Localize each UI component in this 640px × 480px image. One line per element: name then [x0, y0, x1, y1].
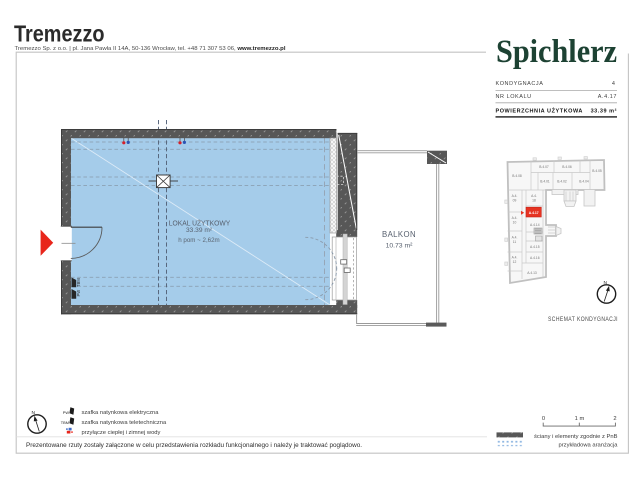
svg-text:A.4.: A.4.	[512, 256, 518, 260]
svg-text:1 m: 1 m	[575, 416, 585, 422]
svg-text:A.4.14: A.4.14	[530, 223, 540, 227]
svg-text:B.4.05: B.4.05	[592, 169, 602, 173]
svg-text:12: 12	[513, 260, 517, 264]
svg-text:A.4.15: A.4.15	[530, 245, 540, 249]
svg-text:ściany i elementy zgodnie z Pn: ściany i elementy zgodnie z PnB	[534, 434, 618, 440]
svg-text:33.39 m²: 33.39 m²	[186, 227, 213, 234]
svg-text:11: 11	[513, 240, 517, 244]
svg-text:BALKON: BALKON	[382, 230, 416, 239]
svg-text:B.4.01: B.4.01	[540, 180, 550, 184]
svg-text:Tremezzo: Tremezzo	[14, 21, 105, 47]
svg-text:A.4.17: A.4.17	[529, 211, 539, 215]
svg-text:szafka natynkowa elektryczna: szafka natynkowa elektryczna	[82, 410, 160, 416]
svg-text:33.39 m²: 33.39 m²	[591, 108, 617, 115]
svg-text:szafka natynkowa teletechniczn: szafka natynkowa teletechniczna	[82, 420, 168, 426]
svg-text:KONDYGNACJA: KONDYGNACJA	[496, 81, 544, 87]
svg-text:TBM: TBM	[76, 278, 81, 287]
svg-text:09: 09	[513, 198, 517, 202]
svg-text:0: 0	[542, 416, 545, 422]
svg-text:TBM: TBM	[61, 420, 69, 425]
svg-text:PW: PW	[63, 410, 70, 415]
svg-text:przykładowa aranżacja: przykładowa aranżacja	[559, 442, 619, 448]
svg-text:18: 18	[532, 198, 536, 202]
svg-text:N: N	[32, 410, 36, 416]
svg-text:4: 4	[612, 81, 616, 87]
svg-text:B.4.02: B.4.02	[557, 180, 567, 184]
svg-text:Prezentowane rzuty zostały zał: Prezentowane rzuty zostały załączone w c…	[26, 442, 362, 449]
svg-text:B.4.04: B.4.04	[579, 180, 589, 184]
svg-text:PW: PW	[76, 290, 81, 297]
svg-text:SCHEMAT KONDYGNACJI: SCHEMAT KONDYGNACJI	[548, 317, 618, 323]
svg-text:A.4.: A.4.	[512, 236, 518, 240]
svg-text:LOKAL UŻYTKOWY: LOKAL UŻYTKOWY	[169, 218, 231, 227]
svg-text:10: 10	[513, 220, 517, 224]
svg-text:B.4.08: B.4.08	[512, 174, 522, 178]
svg-text:2: 2	[613, 416, 616, 422]
svg-text:h pom ~ 2,62m: h pom ~ 2,62m	[178, 237, 219, 244]
svg-text:A.4.16: A.4.16	[530, 256, 540, 260]
svg-text:Spichlerz: Spichlerz	[496, 34, 617, 70]
svg-text:N: N	[604, 280, 608, 286]
svg-text:A.4.: A.4.	[531, 194, 537, 198]
svg-text:NR LOKALU: NR LOKALU	[496, 94, 532, 100]
svg-text:B.4.06: B.4.06	[562, 165, 572, 169]
svg-text:A.4.13: A.4.13	[527, 271, 537, 275]
svg-text:A.4.17: A.4.17	[598, 94, 617, 100]
svg-text:A.4.: A.4.	[512, 194, 518, 198]
svg-text:10.73 m²: 10.73 m²	[386, 243, 414, 250]
svg-text:POWIERZCHNIA UŻYTKOWA: POWIERZCHNIA UŻYTKOWA	[496, 108, 583, 115]
svg-text:B.4.07: B.4.07	[539, 165, 549, 169]
svg-text:przyłącze ciepłej i zimnej wod: przyłącze ciepłej i zimnej wody	[82, 430, 161, 436]
svg-text:Tremezzo Sp. z o.o. | pl. Jana: Tremezzo Sp. z o.o. | pl. Jana Pawła II …	[15, 46, 286, 52]
svg-text:A.4.: A.4.	[512, 216, 518, 220]
